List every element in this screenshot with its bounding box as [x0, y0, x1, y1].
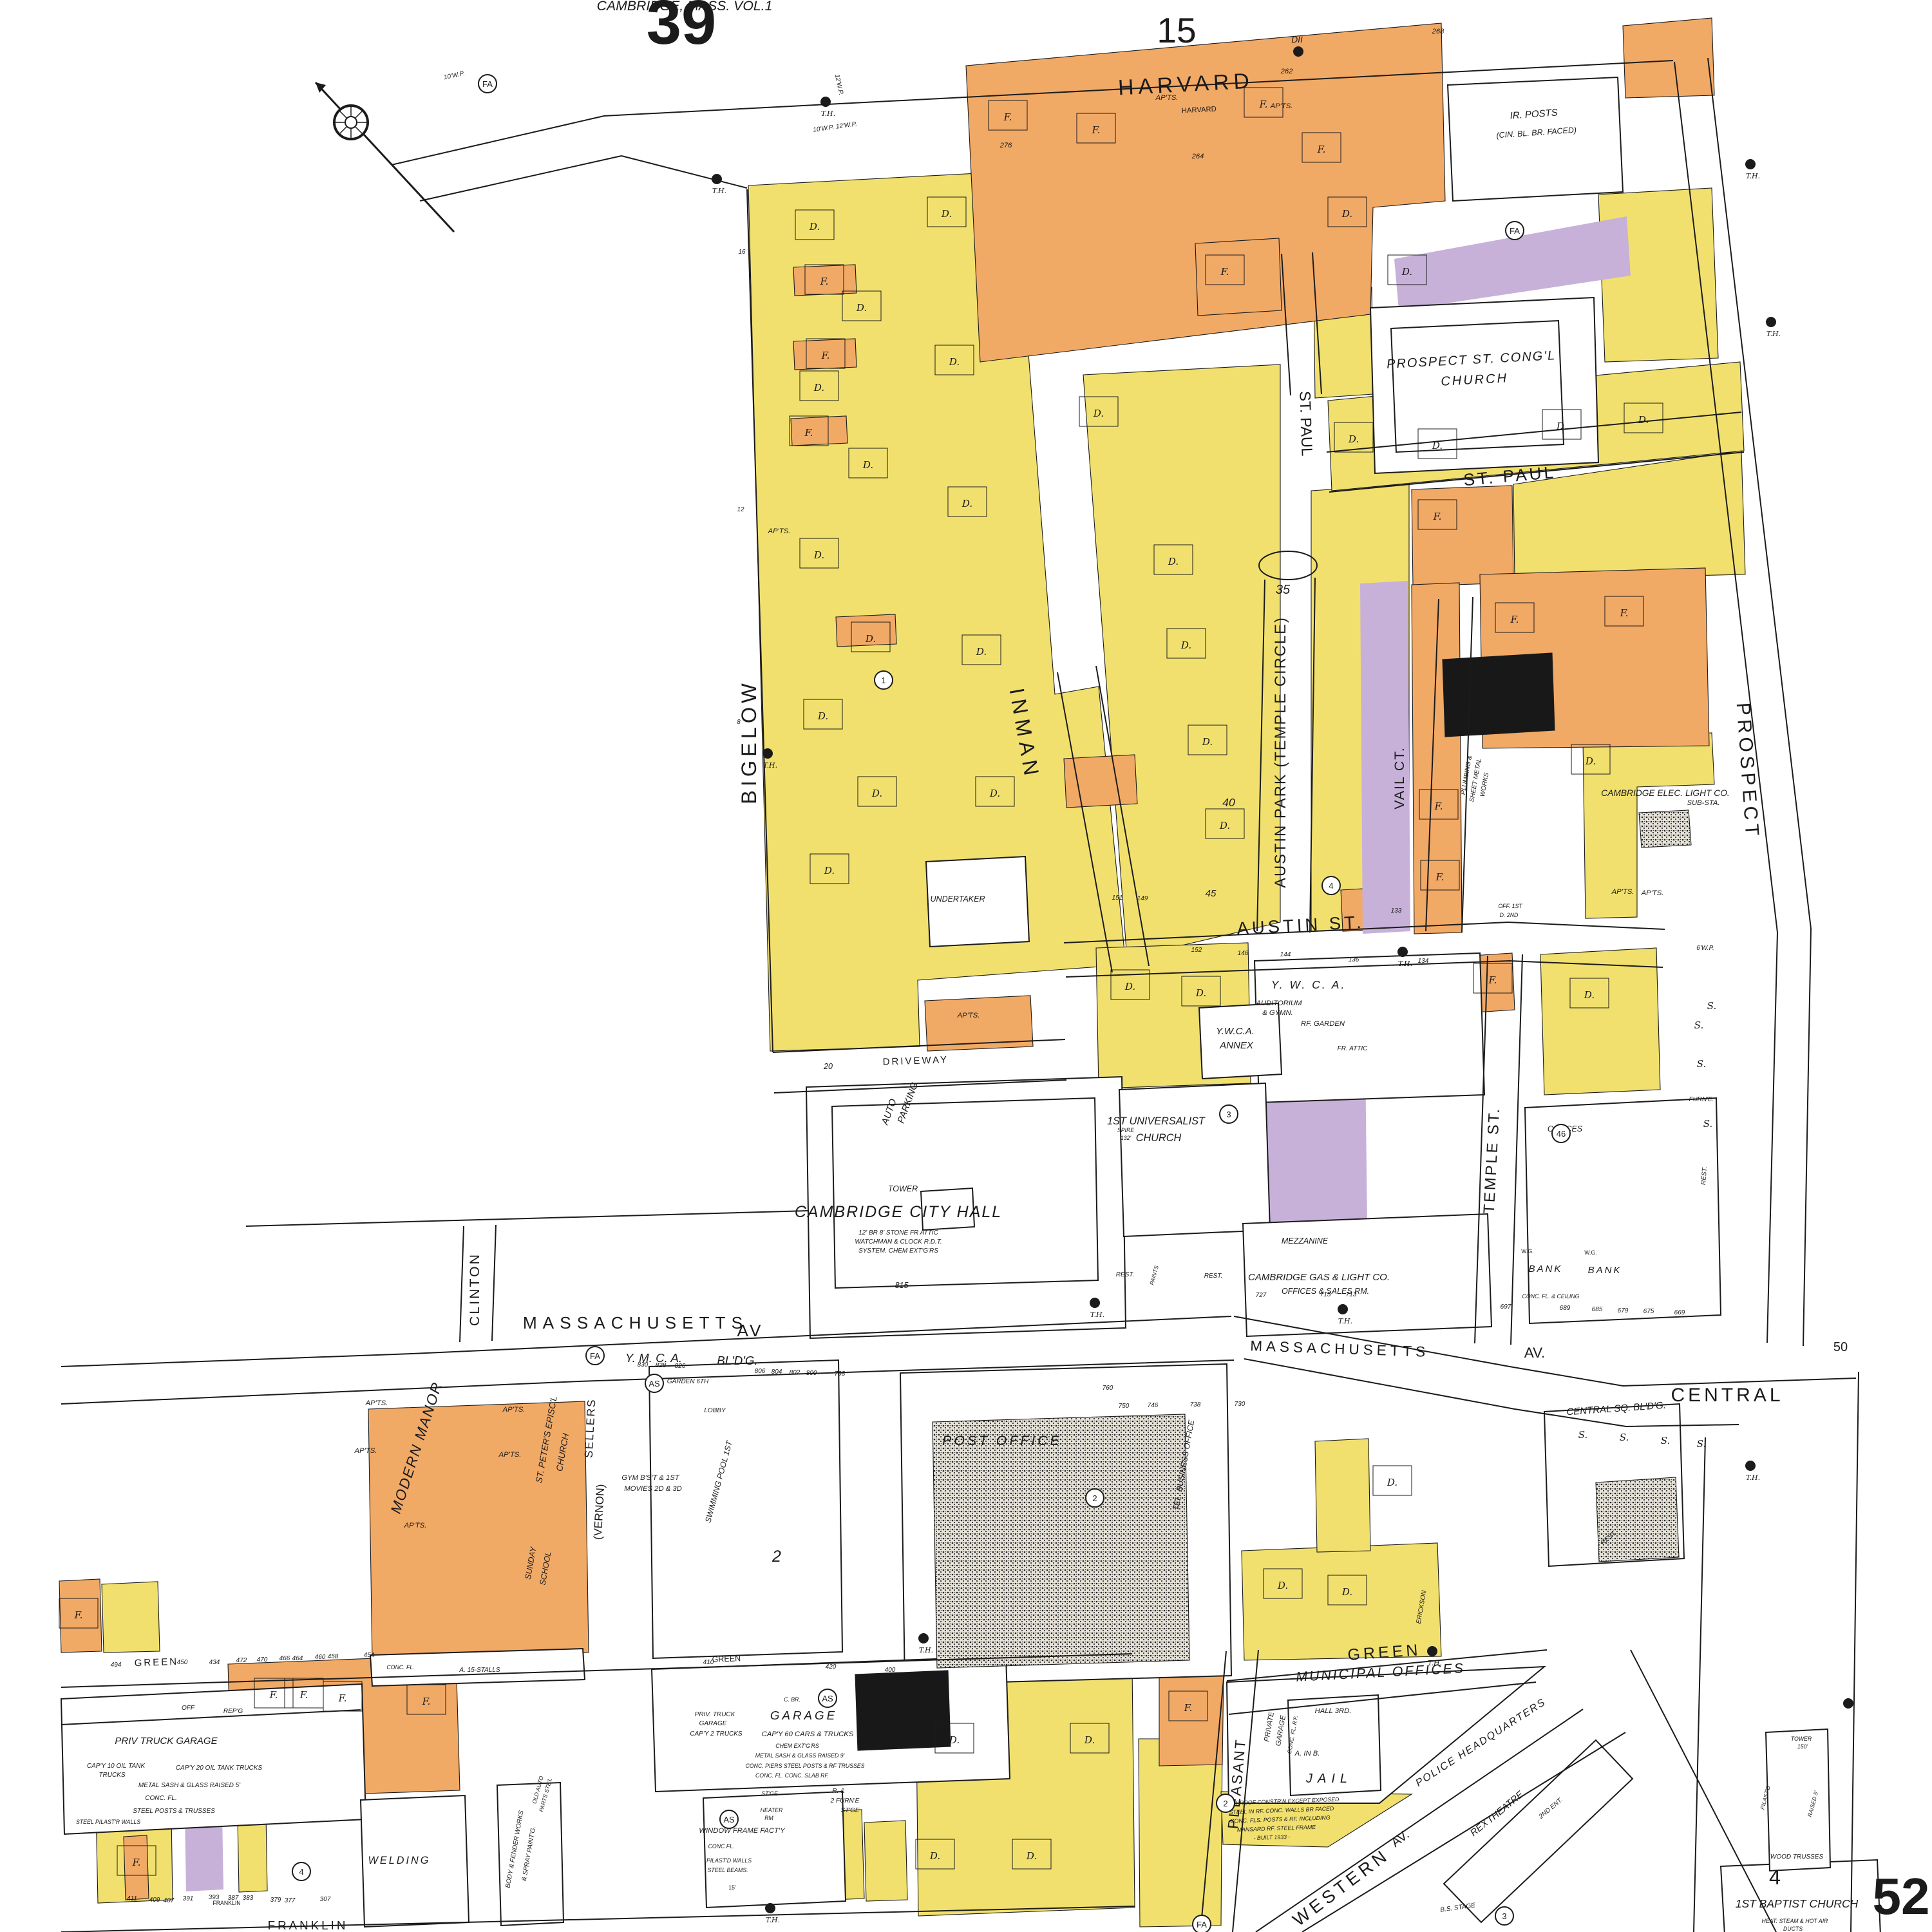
map-label: 15 [1157, 10, 1196, 50]
map-label: 410 [703, 1659, 714, 1666]
map-label: METAL SASH & GLASS RAISED 5' [138, 1782, 241, 1789]
map-label: HEATER [761, 1807, 784, 1814]
map-label: 52 [1873, 1868, 1930, 1925]
map-label: PROSPECT [1732, 702, 1763, 840]
map-label: AP'TS. [1641, 889, 1664, 897]
map-label: MASSACHUSETTS [1250, 1338, 1430, 1360]
map-right-edge [1851, 1372, 1859, 1932]
map-label: 150' [1797, 1743, 1808, 1750]
circled-symbol-text: AS [649, 1379, 660, 1388]
dwelling-letter: D. [929, 1850, 940, 1862]
dark-garage-block [855, 1671, 951, 1750]
map-label: AP'TS. [957, 1012, 980, 1019]
temple-east [1511, 954, 1522, 1345]
map-label: AP'TS. [354, 1447, 377, 1455]
map-label: GREEN [712, 1654, 741, 1664]
map-label: TOWER [1791, 1736, 1812, 1742]
map-label: CONC. FL. CONC. SLAB RF. [755, 1772, 829, 1779]
dark-vail-block [1443, 653, 1555, 737]
block-sw-corner [102, 1582, 160, 1653]
map-label: PRIV. TRUCK [695, 1711, 736, 1718]
th-label: T.H. [766, 1916, 780, 1924]
dwelling-letter: D. [1584, 989, 1595, 1001]
dwelling-letter: D. [961, 498, 972, 509]
map-label: 276 [999, 142, 1013, 149]
dwelling-letter: D. [862, 459, 873, 471]
map-label: 12' BR 8' STONE FR ATTIC [858, 1229, 938, 1236]
store-letter: S. [1620, 1432, 1629, 1443]
map-label: UNDERTAKER [931, 895, 985, 904]
map-label: 450 [177, 1659, 188, 1666]
map-label: 10'W.P. 12'W.P. [813, 120, 858, 133]
circled-symbol-text: 4 [1329, 881, 1333, 891]
map-label: SELLERS [582, 1398, 598, 1459]
flats-letter: F. [1435, 871, 1444, 883]
th-dot [762, 748, 773, 759]
map-label: WATCHMAN & CLOCK R.D.T. [855, 1238, 942, 1245]
map-label: A. 15-STALLS [459, 1667, 500, 1674]
map-label: AP'TS. [502, 1406, 526, 1414]
map-label: 804 [772, 1368, 782, 1376]
map-label: BANK [1529, 1264, 1563, 1274]
map-label: 6'W.P. [1696, 945, 1714, 952]
map-label: 2 [772, 1548, 781, 1566]
flats-letter: F. [338, 1692, 347, 1704]
flats-letter: F. [132, 1857, 141, 1868]
map-label: BANK [1588, 1265, 1622, 1276]
block-franklin-east-col2 [864, 1821, 907, 1901]
store-letter: S. [1707, 1000, 1717, 1012]
map-label: 750 [1119, 1403, 1130, 1410]
dwelling-letter: D. [1277, 1580, 1288, 1591]
th-label: T.H. [919, 1646, 933, 1654]
map-label: MASSACHUSETTS [523, 1313, 748, 1332]
th-label: T.H. [821, 109, 835, 118]
th-dot [1427, 1646, 1437, 1656]
map-label: CONC. FL. [145, 1795, 176, 1802]
map-label: GYM B'S'T & 1ST [621, 1474, 679, 1482]
dwelling-letter: D. [1401, 266, 1412, 278]
flats-letter: F. [422, 1696, 431, 1707]
th-dot [1090, 1298, 1100, 1308]
map-label: 689 [1560, 1305, 1571, 1312]
map-label: OFF. 1ST [1498, 903, 1522, 909]
dwelling-letter: D. [813, 382, 824, 393]
map-label: REP'G [223, 1708, 243, 1715]
franklin-north [61, 1906, 1135, 1932]
prospect-east-edge [1708, 58, 1811, 1346]
dwelling-letter: D. [865, 633, 876, 645]
map-label: REST. [1116, 1271, 1135, 1278]
map-label: 411 [127, 1895, 137, 1902]
store-letter: S. [1578, 1429, 1588, 1441]
map-label: CAMBRIDGE ELEC. LIGHT CO. [1601, 788, 1729, 798]
th-label: T.H. [1090, 1311, 1104, 1319]
map-label: 798 [835, 1370, 846, 1378]
map-label: 826 [675, 1363, 686, 1370]
th-dot [820, 97, 831, 107]
map-label: CONC. FL. [386, 1664, 414, 1671]
map-label: 264 [1191, 153, 1204, 160]
map-label: 746 [1148, 1402, 1159, 1409]
map-label: 35 [1276, 583, 1291, 597]
map-label: 383 [243, 1895, 254, 1902]
dwelling-letter: D. [1387, 1477, 1397, 1488]
map-label: STEEL PILAST'R WALLS [76, 1819, 140, 1825]
map-label: VAIL CT. [1392, 746, 1407, 809]
map-label: WOOD TRUSSES [1770, 1853, 1824, 1861]
circled-symbol-text: AS [723, 1815, 735, 1824]
map-label: - BUILT 1933 - [1253, 1833, 1290, 1841]
map-label: AP'TS. [1155, 94, 1179, 102]
central-st-west [1694, 1437, 1705, 1932]
map-label: 730 [1235, 1401, 1245, 1408]
map-label: POST OFFICE [942, 1433, 1062, 1448]
stipple-central-sq [1596, 1477, 1679, 1562]
map-label: HEAT: STEAM & HOT AIR [1762, 1918, 1829, 1924]
sanborn-map-page: D.D.D.D.D.D.D.D.D.D.D.D.D.D.D.D.D.D.D.D.… [0, 0, 1932, 1932]
map-label: CAP'Y 20 OIL TANK TRUCKS [176, 1765, 263, 1772]
map-label: WESTERN [1289, 1844, 1393, 1930]
stipple-post-office [933, 1414, 1189, 1668]
map-label: 39 [647, 0, 716, 57]
map-label: 470 [257, 1656, 268, 1663]
map-label: 669 [1674, 1309, 1685, 1316]
map-label: AUSTIN PARK (TEMPLE CIRCLE) [1272, 616, 1289, 888]
map-label: 377 [285, 1897, 296, 1904]
map-label: 1ST UNIVERSALIST [1107, 1115, 1206, 1127]
map-label: 151 [1112, 895, 1123, 902]
sanborn-map-canvas: D.D.D.D.D.D.D.D.D.D.D.D.D.D.D.D.D.D.D.D.… [0, 0, 1932, 1932]
circled-symbol-text: 4 [299, 1867, 303, 1877]
map-label: 464 [292, 1655, 303, 1662]
flats-letter: F. [1434, 800, 1443, 812]
map-label: 727 [1256, 1292, 1267, 1299]
map-label: GARDEN 6TH [667, 1378, 709, 1385]
map-label: WELDING [368, 1855, 431, 1866]
map-label: R. & [832, 1788, 845, 1795]
flats-letter: F. [821, 350, 830, 361]
building-blocks [59, 18, 1880, 1932]
map-label: CONC. FL. & CEILING [1522, 1293, 1580, 1300]
diag-baptist-west [1631, 1650, 1776, 1932]
circled-symbol-text: 1 [881, 676, 885, 685]
map-label: PAINTS [1148, 1265, 1160, 1286]
map-label: DII [1291, 35, 1303, 44]
stpaul-west-flat [1195, 238, 1282, 316]
map-label: HALL 3RD. [1315, 1707, 1352, 1715]
th-dot [712, 174, 722, 184]
map-label: ST'GE [761, 1790, 778, 1797]
dwelling-letter: D. [1026, 1850, 1037, 1862]
map-label: 400 [885, 1667, 896, 1674]
map-label: 144 [1280, 951, 1291, 958]
map-label: CAMBRIDGE GAS & LIGHT CO. [1248, 1272, 1390, 1283]
flats-letter: F. [269, 1689, 278, 1701]
map-label: 685 [1592, 1306, 1603, 1313]
map-label: REST. [1204, 1273, 1223, 1280]
map-label: FRANKLIN [268, 1918, 348, 1932]
map-label: 268 [1432, 28, 1445, 35]
map-label: 697 [1501, 1303, 1511, 1311]
map-label: CAP'Y 2 TRUCKS [690, 1730, 743, 1738]
map-label: CONC. PIERS STEEL POSTS & RF TRUSSES [746, 1763, 865, 1769]
map-label: ST. PAUL [1296, 391, 1316, 457]
compass-needle-icon [316, 82, 454, 232]
map-label: 2 FURN'E [830, 1797, 860, 1804]
map-label: 494 [111, 1662, 122, 1669]
th-label: T.H. [1338, 1317, 1352, 1325]
map-label: BL'D'G. [717, 1354, 757, 1367]
th-dot [1766, 317, 1776, 327]
dwelling-letter: D. [1638, 414, 1649, 426]
flats-letter: F. [299, 1689, 308, 1701]
map-label: SYSTEM. CHEM EXT'G'RS [858, 1247, 938, 1255]
map-label: 830 [638, 1361, 649, 1368]
map-label: PRIV TRUCK GARAGE [115, 1736, 218, 1747]
map-label: 40 [1222, 796, 1235, 809]
dwelling-letter: D. [1168, 556, 1179, 567]
map-label: CONC FL. [708, 1843, 735, 1850]
map-label: 132' [1121, 1135, 1132, 1141]
map-label: A. IN B. [1294, 1750, 1320, 1757]
map-label: 458 [328, 1653, 339, 1660]
map-label: 738 [1190, 1401, 1201, 1408]
th-label: T.H. [1746, 1473, 1760, 1482]
map-label: DRIVEWAY [882, 1054, 949, 1068]
map-label: STEEL BEAMS. [707, 1867, 748, 1873]
map-label: LOBBY [704, 1407, 726, 1414]
map-label: JAIL [1305, 1772, 1352, 1786]
map-label: 307 [320, 1896, 331, 1903]
th-label: T.H. [712, 187, 726, 195]
th-dot [1745, 159, 1756, 169]
map-label: 409 [149, 1897, 160, 1904]
store-letter: S. [1703, 1118, 1713, 1130]
dwelling-letter: D. [871, 788, 882, 799]
th-label: T.H. [1428, 1659, 1442, 1667]
map-label: AV. [1388, 1828, 1412, 1850]
circled-symbol-text: FA [482, 79, 493, 89]
map-label: 12 [737, 506, 744, 513]
map-label: 149 [1137, 895, 1148, 902]
cityhall-block-top [246, 1211, 809, 1226]
flats-letter: F. [1003, 111, 1012, 123]
dwelling-letter: D. [976, 646, 987, 658]
th-label: T.H. [1746, 172, 1760, 180]
dwelling-letter: D. [1585, 755, 1596, 767]
circled-symbol-text: 2 [1223, 1799, 1227, 1808]
circled-symbol-text: AS [822, 1694, 833, 1703]
dwelling-letter: D. [817, 710, 828, 722]
compass-rose-icon [316, 82, 454, 232]
map-label: GARAGE [770, 1709, 837, 1722]
map-label: (VERNON) [591, 1484, 607, 1540]
dwelling-letter: D. [1432, 440, 1443, 451]
map-label: 8 [737, 719, 741, 726]
dwelling-letter: D. [941, 208, 952, 220]
map-label: 391 [183, 1895, 194, 1902]
map-label: 407 [164, 1897, 175, 1904]
map-label: Y. W. C. A. [1271, 978, 1347, 991]
map-label: GARAGE [699, 1720, 727, 1727]
map-label: MEZZANINE [1282, 1236, 1329, 1245]
map-label: CENTRAL [1671, 1385, 1783, 1406]
map-label: AP'TS. [1611, 888, 1634, 896]
th-dot [1293, 46, 1303, 57]
map-label: BIGELOW [737, 679, 761, 804]
store-letter: S. [1697, 1058, 1707, 1070]
map-label: 828 [656, 1362, 667, 1369]
dwelling-letter: D. [1084, 1734, 1095, 1746]
map-label: 760 [1103, 1385, 1113, 1392]
map-label: SPIRE [1117, 1127, 1134, 1133]
flats-letter: F. [1317, 144, 1326, 155]
map-label: 134 [1418, 958, 1429, 965]
dwelling-letter: D. [1124, 981, 1135, 992]
th-dot [1745, 1461, 1756, 1471]
map-label: SUB-STA. [1687, 799, 1719, 807]
dwelling-letter: D. [813, 549, 824, 561]
map-label: WINDOW FRAME FACT'Y [699, 1827, 786, 1835]
map-label: 675 [1643, 1308, 1654, 1315]
flats-letter: F. [1433, 511, 1442, 522]
flats-letter: F. [1184, 1702, 1193, 1714]
map-label: TOWER [888, 1184, 918, 1193]
store-letter: S. [1694, 1019, 1704, 1031]
map-label: ANNEX [1219, 1040, 1254, 1051]
dwelling-letter: D. [1093, 408, 1104, 419]
map-label: AP'TS. [365, 1399, 388, 1407]
dwelling-letter: D. [1341, 1586, 1352, 1598]
map-label: 679 [1618, 1307, 1629, 1314]
harvard-approach-3 [621, 156, 747, 188]
map-label: 806 [755, 1368, 766, 1375]
map-label: C. BR. [784, 1696, 800, 1703]
map-label: METAL SASH & GLASS RAISED 9' [755, 1752, 845, 1759]
circled-symbol-text: 3 [1226, 1110, 1231, 1119]
map-label: MOVIES 2D & 3D [624, 1485, 681, 1493]
flats-letter: F. [1092, 124, 1101, 136]
flats-letter: F. [1220, 266, 1229, 278]
map-label: 393 [209, 1894, 220, 1901]
circled-symbol-text: FA [1510, 226, 1520, 236]
row-bigelow-f3 [791, 416, 848, 446]
map-label: Y. M. C. A. [625, 1351, 682, 1365]
map-label: 50 [1833, 1340, 1848, 1354]
map-label: TEMPLE ST. [1481, 1106, 1504, 1214]
dwelling-letter: D. [989, 788, 1000, 799]
dwelling-letter: D. [949, 356, 960, 368]
dwelling-letter: D. [1202, 736, 1213, 748]
dwelling-letter: D. [1341, 208, 1352, 220]
map-label: FR. ATTIC [1338, 1045, 1368, 1052]
map-label: 262 [1280, 68, 1294, 75]
dwelling-letter: D. [1195, 987, 1206, 999]
block-harvard-ne-brick [1623, 18, 1714, 98]
map-label: D. 2ND [1500, 912, 1519, 918]
map-label: 1ST BAPTIST CHURCH [1736, 1897, 1859, 1910]
map-label: & GYMN. [1262, 1009, 1293, 1017]
th-dot [918, 1633, 929, 1643]
block-temple-east [1540, 948, 1660, 1095]
flats-letter: F. [1488, 974, 1497, 986]
map-label: 472 [236, 1657, 247, 1664]
map-label: 10'W.P. [443, 70, 466, 82]
map-label: 466 [279, 1655, 290, 1662]
map-label: 434 [209, 1659, 220, 1666]
circled-symbol-text: 3 [1502, 1911, 1506, 1921]
map-label: AP'TS. [404, 1522, 427, 1529]
circled-symbol-text: 2 [1092, 1493, 1097, 1503]
map-label: 715 [1320, 1291, 1331, 1298]
dwelling-letter: D. [824, 865, 835, 876]
white-baptist-tower [1766, 1729, 1830, 1871]
map-label: AP'TS. [1270, 102, 1293, 110]
th-label: T.H. [763, 761, 777, 770]
clinton-west [460, 1226, 464, 1342]
map-label: 420 [826, 1663, 837, 1671]
map-label: WORKS [1479, 772, 1490, 797]
map-label: RM [764, 1815, 773, 1821]
map-label: GREEN [134, 1656, 178, 1669]
th-label: T.H. [1766, 330, 1781, 338]
harvard-approach-2 [420, 156, 621, 201]
map-label: 379 [270, 1897, 281, 1904]
th-dot [1397, 947, 1408, 957]
stipple-sub-sta [1639, 810, 1691, 848]
map-label: 4 [1769, 1866, 1781, 1889]
circled-symbol-text: FA [1197, 1920, 1207, 1929]
map-label: CHEM EXT'G'RS [775, 1743, 819, 1749]
map-label: 146 [1238, 950, 1249, 957]
map-label: 16 [738, 249, 746, 256]
harvard-approach-1 [392, 116, 604, 165]
map-label: 152 [1191, 947, 1202, 954]
dwelling-letter: D. [809, 221, 820, 232]
map-label: CHURCH [1136, 1132, 1182, 1144]
block-erickson-north-col [1315, 1439, 1370, 1552]
inman-flat [1064, 755, 1137, 808]
dwelling-letter: D. [1556, 421, 1567, 432]
map-label: TRUCKS [99, 1772, 125, 1779]
circled-symbol-text: 46 [1557, 1129, 1566, 1139]
white-ymca-lot [649, 1360, 842, 1658]
clinton-east [492, 1225, 496, 1341]
map-label: CAP'Y 60 CARS & TRUCKS [762, 1730, 854, 1738]
flats-letter: F. [1510, 614, 1519, 625]
th-dot [1843, 1698, 1853, 1709]
map-label: ST'GE [840, 1807, 859, 1814]
th-label: T.H. [1398, 960, 1412, 968]
map-label: 387 [228, 1895, 239, 1902]
vail-north-strip [1412, 486, 1513, 586]
map-label: W.G. [1521, 1248, 1533, 1255]
map-label: CLINTON [467, 1253, 482, 1326]
circled-symbol-text: FA [590, 1351, 600, 1361]
map-label: W.G. [1584, 1249, 1596, 1256]
flats-letter: F. [1620, 607, 1629, 619]
map-label: 20 [823, 1062, 833, 1071]
dwelling-letter: D. [1180, 639, 1191, 651]
map-label: 12'W.P. [833, 73, 845, 96]
flats-letter: F. [74, 1609, 83, 1621]
map-label: AUDITORIUM [1255, 999, 1302, 1007]
map-label: FURN'E. [1689, 1096, 1714, 1103]
flats-letter: F. [1259, 99, 1268, 110]
dwelling-letter: D. [1219, 820, 1230, 831]
dwelling-letter: D. [1348, 433, 1359, 445]
